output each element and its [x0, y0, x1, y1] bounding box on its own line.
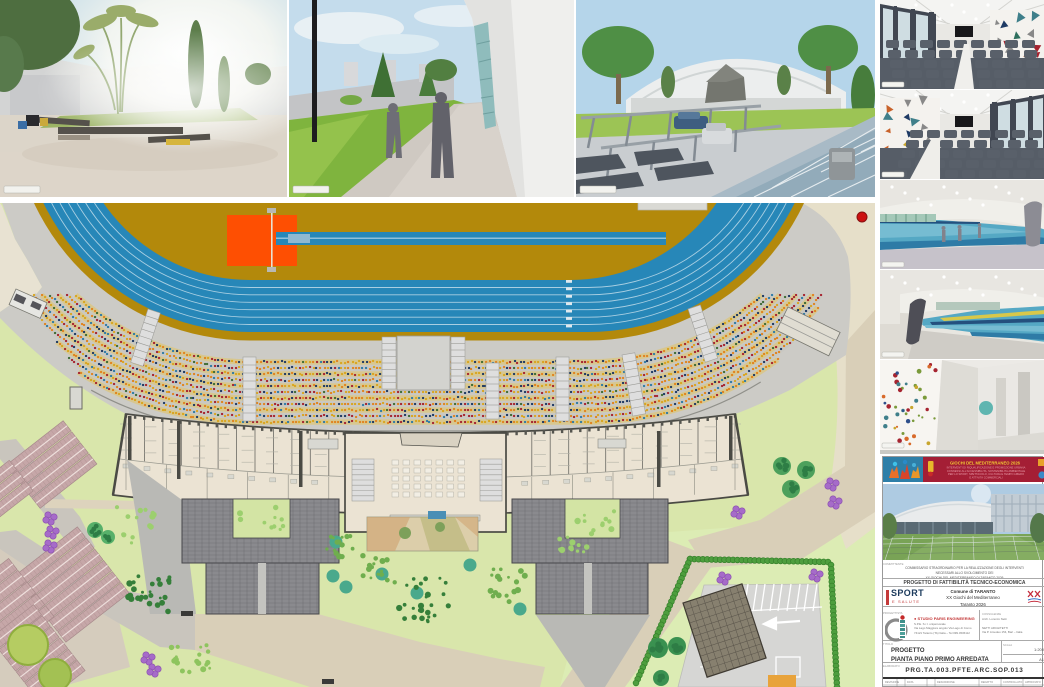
svg-text:DESCRIZIONE: DESCRIZIONE [937, 680, 955, 684]
svg-text:APPROVATO: APPROVATO [1025, 680, 1041, 684]
svg-text:GIOCHI DEL MEDITERRANEO 2026: GIOCHI DEL MEDITERRANEO 2026 [950, 461, 1021, 466]
svg-text:REDATTO: REDATTO [981, 680, 993, 684]
svg-text:CONTROLLATO: CONTROLLATO [1003, 680, 1022, 684]
svg-text:DATA: DATA [907, 680, 914, 684]
svg-text:REVISIONE: REVISIONE [885, 680, 899, 684]
svg-text:E ATTIVITA COMMERCIALI: E ATTIVITA COMMERCIALI [969, 475, 1003, 479]
